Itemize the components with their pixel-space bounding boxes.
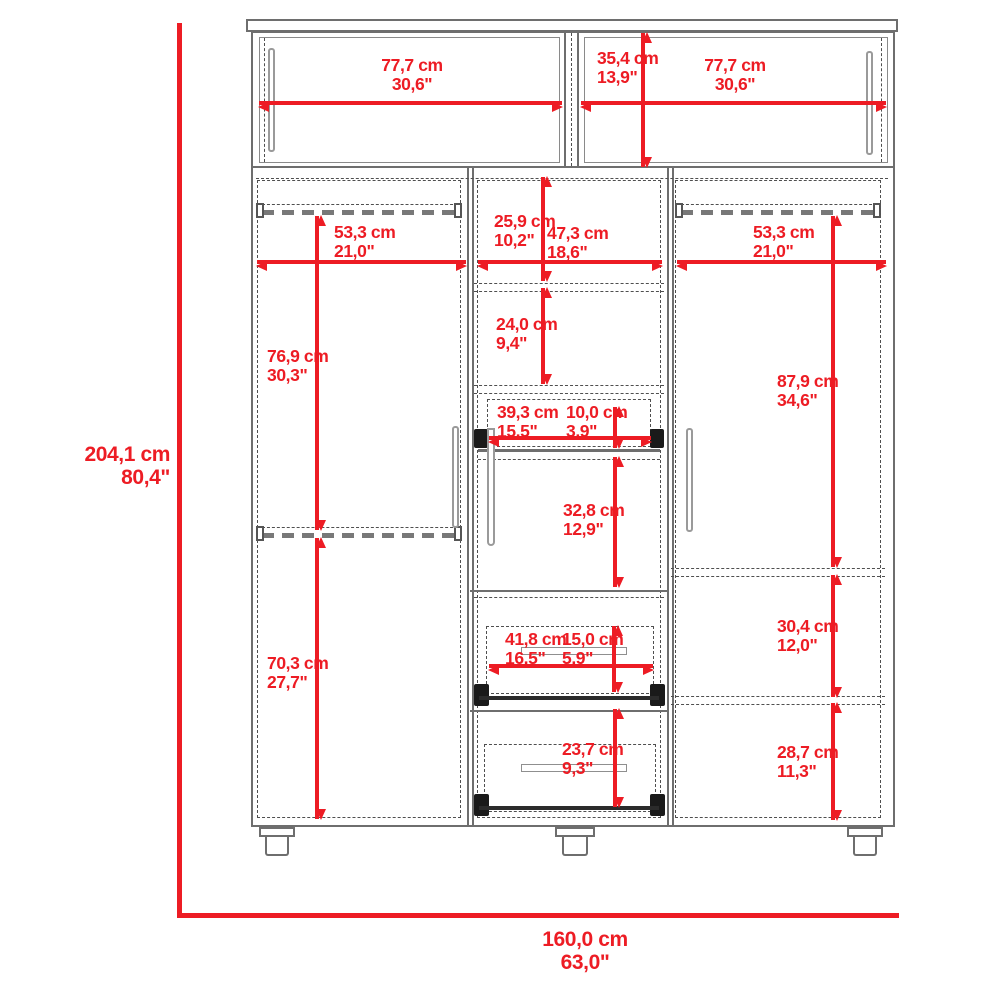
- dim-in: 12,0": [777, 636, 838, 655]
- drawer-1-rail-right: [650, 684, 665, 706]
- dim-right-middle-height: 30,4 cm 12,0": [777, 617, 838, 654]
- dim-cm: 53,3 cm: [334, 223, 395, 242]
- main-divider-right: [667, 168, 674, 827]
- dim-drawer-height: 15,0 cm 5,9": [562, 630, 623, 667]
- dim-small-drawer-height: 10,0 cm 3,9": [566, 403, 627, 440]
- dim-in: 30,6": [381, 75, 442, 94]
- dim-cm: 53,3 cm: [753, 223, 814, 242]
- dim-in: 30,6": [704, 75, 765, 94]
- dim-in: 21,0": [334, 242, 395, 261]
- right-door-outline: [675, 180, 881, 818]
- drawer-1-bottom-edge: [479, 696, 659, 700]
- dim-left-rod-width: 53,3 cm 21,0": [334, 223, 395, 260]
- mid-shelf-1: [474, 283, 664, 284]
- dim-left-lower-height: 70,3 cm 27,7": [267, 654, 328, 691]
- mid-shelf-1b: [474, 291, 664, 292]
- dim-cm: 77,7 cm: [381, 56, 442, 75]
- left-hanging-rod-upper: [262, 210, 458, 215]
- dim-cm: 28,7 cm: [777, 743, 838, 762]
- drawer-2-rail-left: [474, 794, 489, 816]
- dim-in: 18,6": [547, 243, 608, 262]
- rod-bracket: [256, 203, 264, 218]
- main-divider-left: [467, 168, 474, 827]
- dim-top-height: 35,4 cm 13,9": [597, 49, 658, 86]
- small-drawer-under-dash: [478, 459, 660, 460]
- foot-right-stem: [853, 837, 877, 856]
- dim-top-left-width: 77,7 cm 30,6": [381, 56, 442, 93]
- right-hanging-rod: [681, 210, 877, 215]
- dim-mid-shelf-height: 24,0 cm 9,4": [496, 315, 557, 352]
- left-rod2-guide: [262, 527, 458, 528]
- dim-in: 80,4": [40, 466, 170, 489]
- dim-in: 13,9": [597, 68, 658, 87]
- dim-cm: 32,8 cm: [563, 501, 624, 520]
- dim-cm: 39,3 cm: [497, 403, 558, 422]
- dim-cm: 77,7 cm: [704, 56, 765, 75]
- top-door-left-edge-dash: [264, 38, 265, 162]
- dim-cm: 35,4 cm: [597, 49, 658, 68]
- drawer-2-bottom-edge: [479, 806, 659, 810]
- arrow-right-rod-width: [677, 260, 886, 264]
- top-section-bottom-edge: [253, 166, 893, 168]
- foot-left-stem: [265, 837, 289, 856]
- rod-bracket: [873, 203, 881, 218]
- top-door-right-edge-dash: [881, 38, 882, 162]
- dim-right-lower-height: 28,7 cm 11,3": [777, 743, 838, 780]
- foot-left: [259, 827, 295, 837]
- dim-in: 21,0": [753, 242, 814, 261]
- dim-in: 30,3": [267, 366, 328, 385]
- foot-middle: [555, 827, 595, 837]
- left-door-outline: [257, 180, 461, 818]
- left-hanging-rod-lower: [262, 533, 458, 538]
- dim-in: 11,3": [777, 762, 838, 781]
- dim-mid-cavity-height: 32,8 cm 12,9": [563, 501, 624, 538]
- dim-cm: 87,9 cm: [777, 372, 838, 391]
- dim-cm: 160,0 cm: [542, 928, 628, 951]
- drawer-2-rail-right: [650, 794, 665, 816]
- top-door-left-handle: [268, 48, 275, 152]
- dim-top-right-width: 77,7 cm 30,6": [704, 56, 765, 93]
- foot-middle-stem: [562, 837, 588, 856]
- rod-bracket: [256, 526, 264, 541]
- small-drawer-front-edge: [478, 449, 660, 452]
- right-door-handle: [686, 428, 693, 532]
- dim-overall-width: 160,0 cm 63,0": [542, 928, 628, 974]
- dim-bottom-drawer-height: 23,7 cm 9,3": [562, 740, 623, 777]
- small-drawer-rail-right: [650, 429, 664, 448]
- dim-small-drawer-width: 39,3 cm 15,5": [497, 403, 558, 440]
- dim-drawer-width: 41,8 cm 16,5": [505, 630, 566, 667]
- rod-bracket: [454, 526, 462, 541]
- dim-cm: 10,0 cm: [566, 403, 627, 422]
- dim-overall-height: 204,1 cm 80,4": [40, 443, 170, 489]
- mid-shelf-2b: [474, 393, 664, 394]
- dim-cm: 24,0 cm: [496, 315, 557, 334]
- mid-shelf-3: [470, 590, 668, 592]
- dim-cm: 30,4 cm: [777, 617, 838, 636]
- dim-cm: 15,0 cm: [562, 630, 623, 649]
- dim-mid-width: 47,3 cm 18,6": [547, 224, 608, 261]
- left-door-handle: [452, 426, 459, 528]
- main-top-dash: [256, 178, 888, 179]
- dim-in: 12,9": [563, 520, 624, 539]
- dim-in: 3,9": [566, 422, 627, 441]
- dim-right-upper-height: 87,9 cm 34,6": [777, 372, 838, 409]
- overall-height-line: [177, 23, 182, 915]
- small-drawer-rail-left: [474, 429, 488, 448]
- right-shelf-upper: [671, 568, 885, 569]
- right-shelf-lower-b: [671, 704, 885, 705]
- dim-cm: 23,7 cm: [562, 740, 623, 759]
- left-rod1-guide: [262, 204, 458, 205]
- dim-cm: 70,3 cm: [267, 654, 328, 673]
- dim-in: 5,9": [562, 649, 623, 668]
- mid-shelf-3-dash: [474, 597, 664, 598]
- dim-right-rod-width: 53,3 cm 21,0": [753, 223, 814, 260]
- dim-in: 63,0": [542, 951, 628, 974]
- dim-in: 9,4": [496, 334, 557, 353]
- arrow-top-left-width: [259, 101, 562, 105]
- middle-compartment-outline: [477, 180, 661, 818]
- mid-shelf-4: [470, 710, 668, 712]
- wardrobe-dimension-diagram: 204,1 cm 80,4" 160,0 cm 63,0": [0, 0, 1000, 1000]
- dim-left-upper-height: 76,9 cm 30,3": [267, 347, 328, 384]
- dim-in: 34,6": [777, 391, 838, 410]
- mid-shelf-2: [474, 385, 664, 386]
- dim-cm: 47,3 cm: [547, 224, 608, 243]
- dim-cm: 41,8 cm: [505, 630, 566, 649]
- dim-in: 9,3": [562, 759, 623, 778]
- foot-right: [847, 827, 883, 837]
- top-divider-dash: [571, 33, 572, 166]
- right-rod-guide: [681, 204, 877, 205]
- right-shelf-lower: [671, 696, 885, 697]
- dim-in: 16,5": [505, 649, 566, 668]
- dim-cm: 76,9 cm: [267, 347, 328, 366]
- drawer-1-rail-left: [474, 684, 489, 706]
- dim-in: 27,7": [267, 673, 328, 692]
- dim-cm: 204,1 cm: [40, 443, 170, 466]
- dim-in: 15,5": [497, 422, 558, 441]
- arrow-left-rod-width: [257, 260, 466, 264]
- rod-bracket: [675, 203, 683, 218]
- top-section-divider: [564, 33, 579, 166]
- overall-width-line: [177, 913, 899, 918]
- rod-bracket: [454, 203, 462, 218]
- arrow-top-right-width: [581, 101, 886, 105]
- right-shelf-upper-b: [671, 576, 885, 577]
